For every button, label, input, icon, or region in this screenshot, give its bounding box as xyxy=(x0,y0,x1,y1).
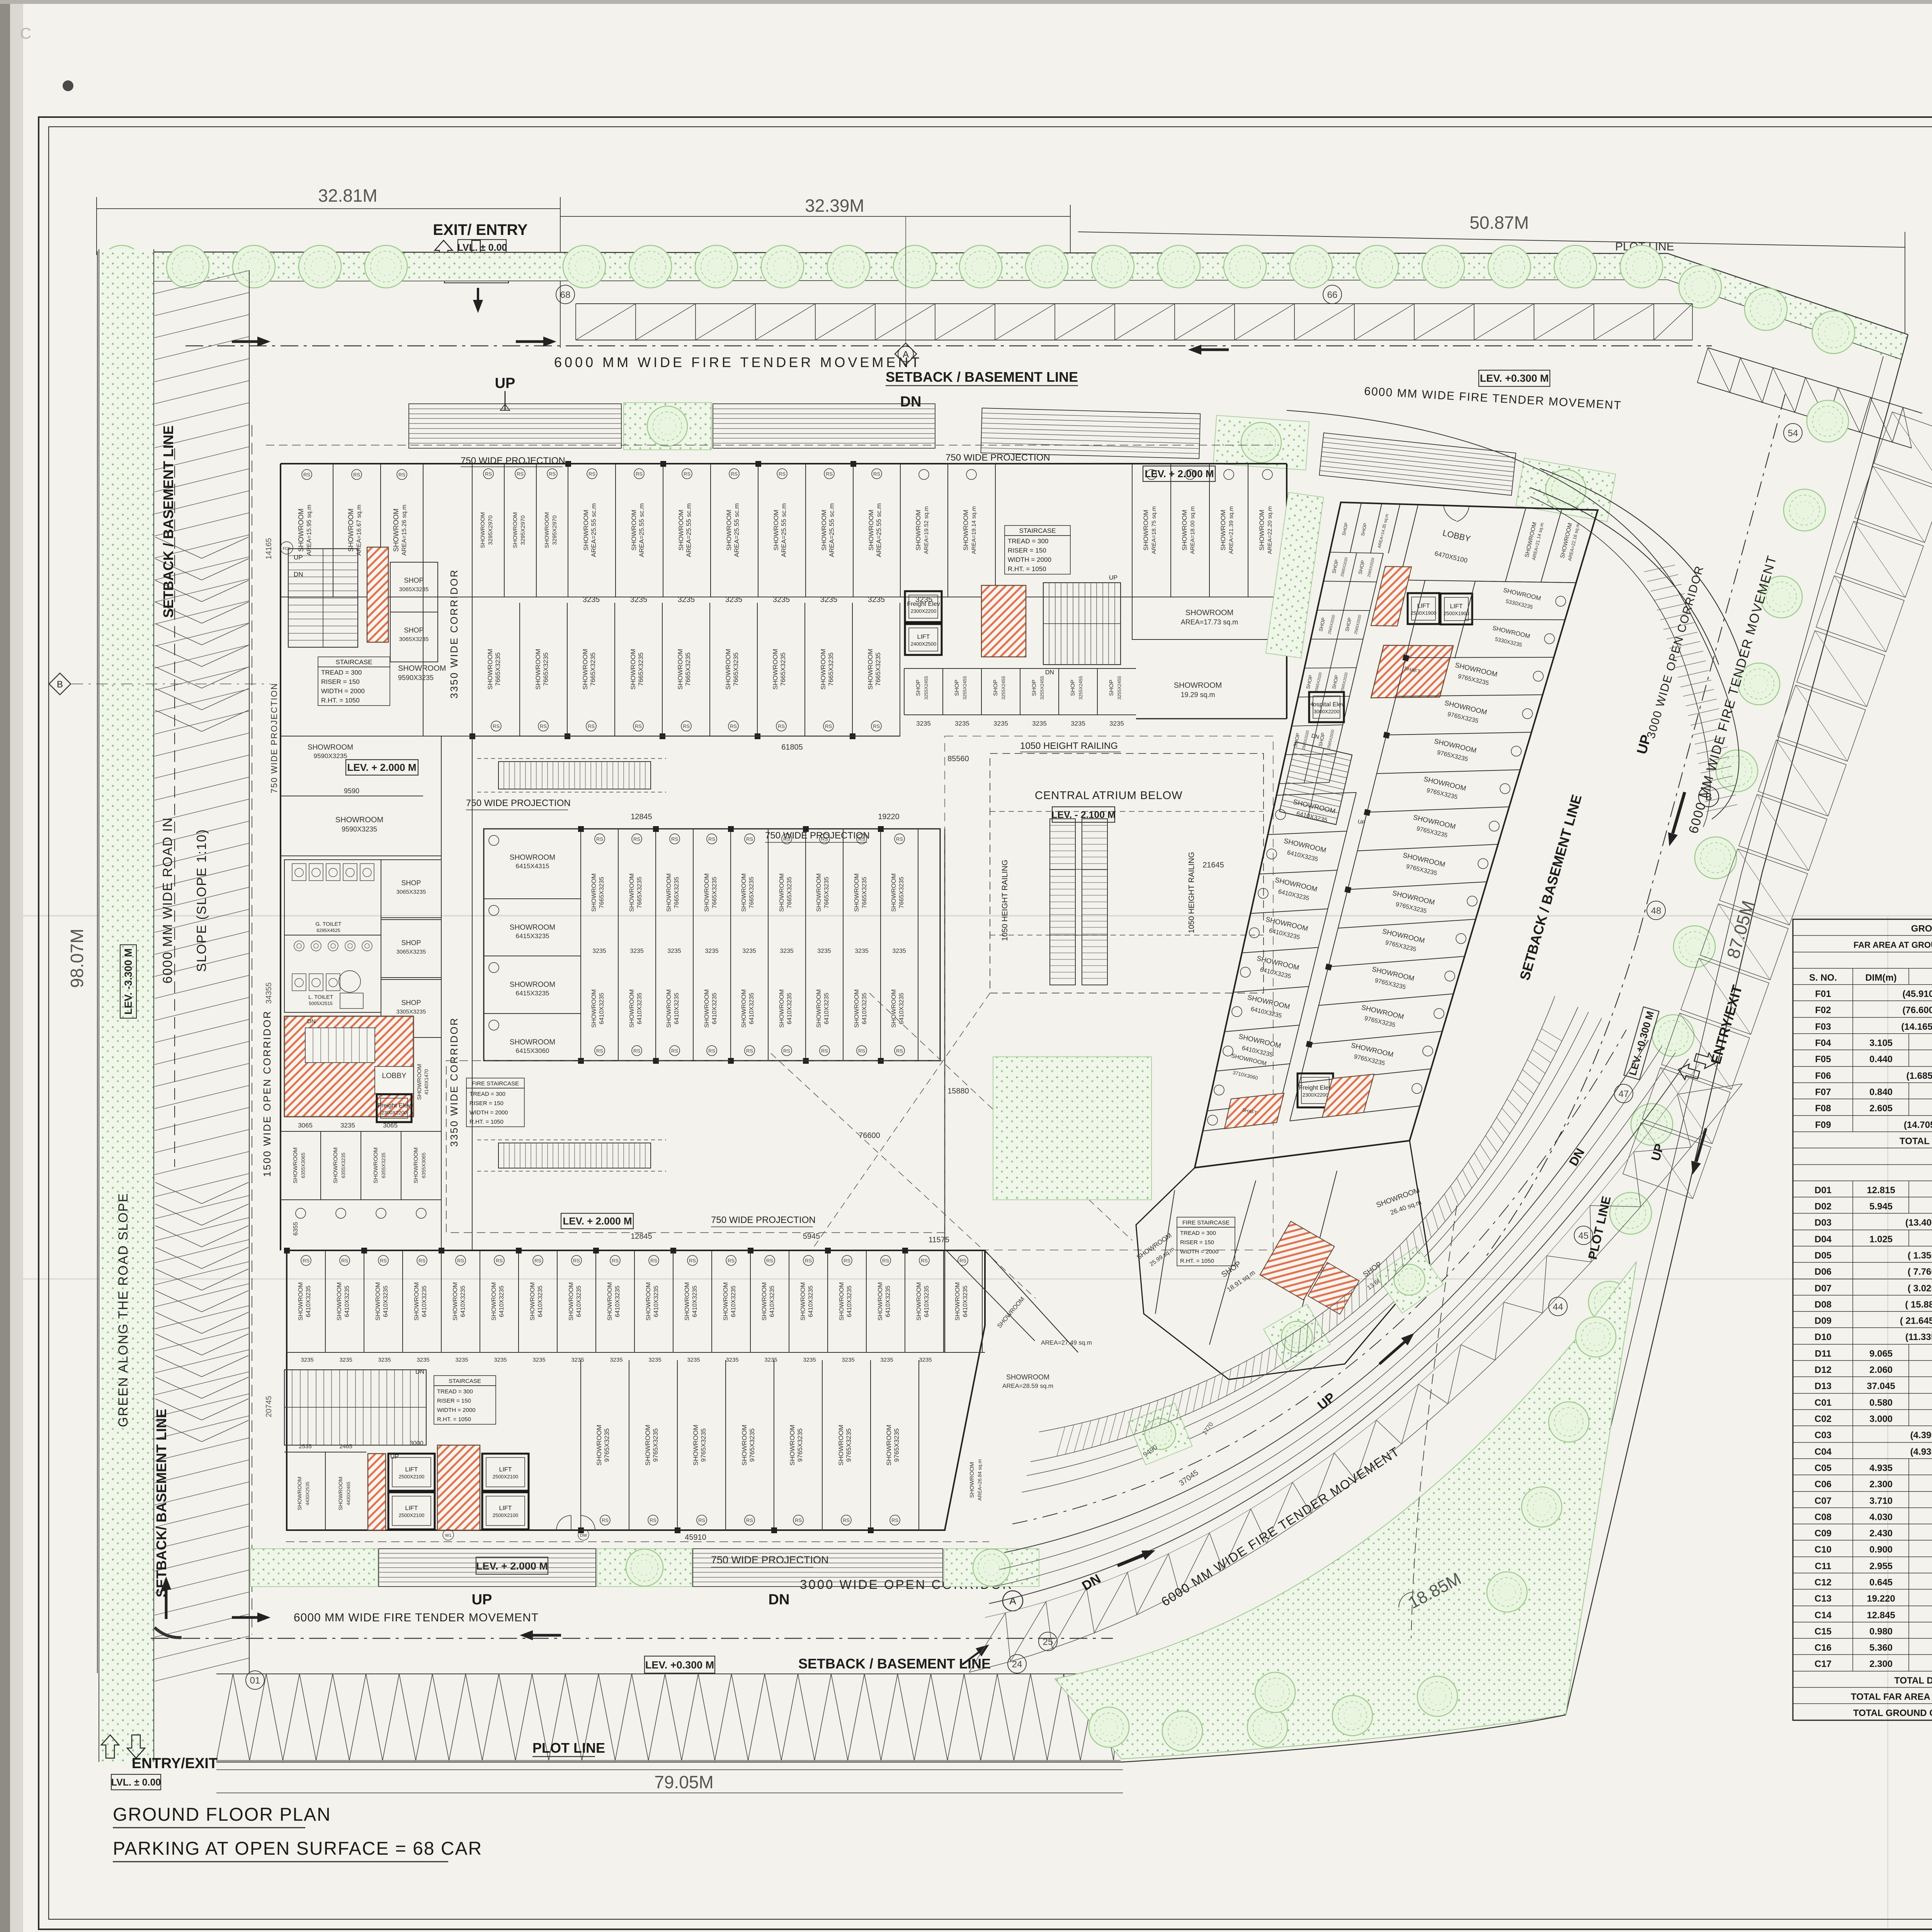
svg-text:SHOWROOM: SHOWROOM xyxy=(491,1282,497,1321)
svg-text:LIFT: LIFT xyxy=(1450,603,1463,610)
svg-text:3235: 3235 xyxy=(817,948,831,954)
svg-text:RS: RS xyxy=(573,1258,580,1264)
svg-text:AREA=25.55 sc.m: AREA=25.55 sc.m xyxy=(780,503,787,557)
svg-text:3235: 3235 xyxy=(610,1357,622,1363)
svg-text:0.580: 0.580 xyxy=(1869,1398,1893,1408)
svg-text:SETBACK / BASEMENT LINE: SETBACK / BASEMENT LINE xyxy=(886,369,1078,385)
svg-text:RS: RS xyxy=(596,1048,603,1054)
svg-text:B: B xyxy=(1705,791,1712,803)
svg-text:C08: C08 xyxy=(1815,1512,1832,1522)
svg-text:3065: 3065 xyxy=(298,1122,313,1129)
svg-text:SHOWROOM: SHOWROOM xyxy=(486,649,494,690)
svg-text:RS: RS xyxy=(959,1258,966,1264)
svg-text:3235: 3235 xyxy=(780,948,794,954)
svg-text:SHOWROOM: SHOWROOM xyxy=(954,1282,961,1321)
svg-text:3235: 3235 xyxy=(1109,720,1124,727)
svg-text:0.980: 0.980 xyxy=(1869,1626,1893,1637)
svg-text:19.220: 19.220 xyxy=(1867,1594,1895,1604)
svg-text:( 7.760 + 6.440 )/2 X 1.155: ( 7.760 + 6.440 )/2 X 1.155 xyxy=(1908,1267,1932,1277)
svg-text:TOTAL ADDITION AREA (A): TOTAL ADDITION AREA (A) xyxy=(1900,1136,1932,1146)
svg-text:SHOWROOM: SHOWROOM xyxy=(741,873,747,912)
svg-text:6410X3235: 6410X3235 xyxy=(861,993,868,1024)
svg-text:9765X3235: 9765X3235 xyxy=(845,1429,852,1462)
svg-text:6410X3235: 6410X3235 xyxy=(673,993,680,1024)
svg-text:SHOWROOM: SHOWROOM xyxy=(398,664,446,673)
svg-text:DIM(m): DIM(m) xyxy=(1865,973,1896,983)
svg-text:C03: C03 xyxy=(1815,1430,1832,1440)
svg-text:SHOP: SHOP xyxy=(1031,680,1037,696)
svg-text:WIDTH = 2000: WIDTH = 2000 xyxy=(321,687,365,695)
svg-text:0.645: 0.645 xyxy=(1869,1577,1893,1588)
svg-text:C16: C16 xyxy=(1815,1643,1832,1653)
svg-text:Freight Elev: Freight Elev xyxy=(907,601,940,607)
svg-text:UP: UP xyxy=(495,375,515,391)
svg-text:SHOWROOM: SHOWROOM xyxy=(684,1282,690,1321)
svg-text:SHOWROOM: SHOWROOM xyxy=(332,1147,339,1183)
svg-text:SHOP: SHOP xyxy=(915,680,922,696)
svg-text:EXIT/ ENTRY: EXIT/ ENTRY xyxy=(433,221,528,238)
svg-text:3235: 3235 xyxy=(880,1357,893,1363)
svg-text:6410X3235: 6410X3235 xyxy=(305,1286,312,1317)
svg-text:3235: 3235 xyxy=(630,948,644,954)
svg-text:STAIRCASE: STAIRCASE xyxy=(1019,527,1056,534)
svg-text:SHOWROOM: SHOWROOM xyxy=(452,1282,459,1321)
svg-text:750 WIDE PROJECTION: 750 WIDE PROJECTION xyxy=(711,1554,829,1566)
svg-text:D02: D02 xyxy=(1815,1201,1832,1212)
svg-text:RS: RS xyxy=(341,1258,348,1264)
svg-text:SHOWROOM: SHOWROOM xyxy=(510,923,555,932)
svg-text:3.000: 3.000 xyxy=(1869,1414,1893,1424)
svg-text:750 WIDE PROJECTION: 750 WIDE PROJECTION xyxy=(461,456,565,466)
svg-text:SHOWROOM: SHOWROOM xyxy=(741,989,747,1028)
svg-text:2500X1900: 2500X1900 xyxy=(1411,610,1437,616)
svg-text:STAIRCASE: STAIRCASE xyxy=(335,658,372,666)
svg-text:85560: 85560 xyxy=(947,755,969,763)
svg-text:C14: C14 xyxy=(1815,1610,1832,1621)
svg-text:D05: D05 xyxy=(1815,1250,1832,1261)
svg-text:SHOWROOM: SHOWROOM xyxy=(510,1038,555,1046)
svg-text:SHOWROOM: SHOWROOM xyxy=(591,873,597,912)
svg-text:3235: 3235 xyxy=(955,720,969,727)
svg-text:20745: 20745 xyxy=(265,1396,273,1417)
svg-text:A: A xyxy=(1009,1595,1016,1607)
svg-text:RS: RS xyxy=(684,471,690,477)
svg-text:C15: C15 xyxy=(1815,1626,1832,1637)
svg-text:SHOWROOM: SHOWROOM xyxy=(854,873,860,912)
svg-text:3235: 3235 xyxy=(919,1357,932,1363)
svg-text:RS: RS xyxy=(728,1258,735,1264)
svg-text:7665X3235: 7665X3235 xyxy=(786,877,793,908)
svg-text:6415X3060: 6415X3060 xyxy=(516,1047,549,1054)
svg-text:SHOWROOM: SHOWROOM xyxy=(629,873,635,912)
svg-text:RISER = 150: RISER = 150 xyxy=(1008,547,1046,554)
svg-text:RS: RS xyxy=(650,1517,656,1523)
svg-text:FIRE STAIRCASE: FIRE STAIRCASE xyxy=(472,1080,519,1087)
svg-text:37.045: 37.045 xyxy=(1867,1381,1895,1391)
svg-text:RS: RS xyxy=(844,1258,850,1264)
svg-text:SHOWROOM: SHOWROOM xyxy=(292,1147,299,1183)
svg-text:6295X4525: 6295X4525 xyxy=(316,928,340,933)
svg-text:6000 MM WIDE FIRE TENDER MOVEM: 6000 MM WIDE FIRE TENDER MOVEMENT xyxy=(294,1611,539,1624)
svg-text:6410X3235: 6410X3235 xyxy=(730,1286,737,1317)
svg-text:SHOWROOM: SHOWROOM xyxy=(867,649,874,690)
svg-text:19220: 19220 xyxy=(878,813,900,821)
svg-text:12.845: 12.845 xyxy=(1867,1610,1895,1621)
svg-text:DN: DN xyxy=(307,1018,316,1025)
svg-text:RS: RS xyxy=(826,471,833,477)
svg-text:SHOWROOM: SHOWROOM xyxy=(595,1425,603,1466)
svg-text:SHOWROOM: SHOWROOM xyxy=(413,1282,420,1321)
svg-text:76600: 76600 xyxy=(859,1131,880,1140)
svg-text:Freight Elev: Freight Elev xyxy=(378,1102,410,1109)
svg-text:6410X3235: 6410X3235 xyxy=(636,993,643,1024)
svg-text:7665X3235: 7665X3235 xyxy=(861,877,868,908)
svg-text:SHOWROOM: SHOWROOM xyxy=(779,873,785,912)
svg-text:SETBACK / BASEMENT LINE: SETBACK / BASEMENT LINE xyxy=(160,425,176,618)
svg-text:3235: 3235 xyxy=(705,948,719,954)
svg-text:F07: F07 xyxy=(1815,1087,1831,1097)
svg-text:6410X3235: 6410X3235 xyxy=(460,1286,466,1317)
svg-text:RS: RS xyxy=(698,1517,705,1523)
svg-text:6410X3235: 6410X3235 xyxy=(599,993,605,1024)
svg-text:1050 HEIGHT RAILING: 1050 HEIGHT RAILING xyxy=(1020,741,1118,751)
svg-text:9765X3235: 9765X3235 xyxy=(603,1429,611,1462)
svg-text:SHOWROOM: SHOWROOM xyxy=(510,981,555,989)
svg-text:11575: 11575 xyxy=(929,1236,949,1244)
svg-text:RS: RS xyxy=(398,472,405,478)
svg-text:1.025: 1.025 xyxy=(1869,1234,1893,1245)
svg-text:LIFT: LIFT xyxy=(405,1505,418,1512)
svg-text:SHOWROOM: SHOWROOM xyxy=(512,512,519,548)
svg-text:TREAD = 300: TREAD = 300 xyxy=(437,1388,473,1395)
svg-text:6410X3235: 6410X3235 xyxy=(383,1286,389,1317)
svg-text:RS: RS xyxy=(683,723,690,729)
svg-text:(13.400 + 3.305)/2 X 11.575: (13.400 + 3.305)/2 X 11.575 xyxy=(1905,1218,1932,1228)
svg-text:2400X2500: 2400X2500 xyxy=(911,641,937,647)
svg-text:F08: F08 xyxy=(1815,1103,1831,1114)
svg-text:C05: C05 xyxy=(1815,1463,1832,1473)
svg-text:48: 48 xyxy=(1651,906,1662,916)
svg-text:AREA=25.55 sc.m: AREA=25.55 sc.m xyxy=(733,503,740,557)
svg-text:SETBACK/ BASEMENT LINE: SETBACK/ BASEMENT LINE xyxy=(153,1409,169,1597)
svg-text:D06: D06 xyxy=(1815,1267,1832,1277)
svg-text:(4.395 + 4.385)/2 X 9.490: (4.395 + 4.385)/2 X 9.490 xyxy=(1910,1430,1932,1440)
svg-text:6415X3235: 6415X3235 xyxy=(516,990,549,997)
svg-text:3235: 3235 xyxy=(687,1357,700,1363)
svg-text:6410X3235: 6410X3235 xyxy=(748,993,755,1024)
svg-text:9765X3235: 9765X3235 xyxy=(893,1429,900,1462)
svg-text:750 WIDE PROJECTION: 750 WIDE PROJECTION xyxy=(466,798,571,808)
svg-text:0.840: 0.840 xyxy=(1869,1087,1893,1097)
svg-text:6000 MM WIDE ROAD IN: 6000 MM WIDE ROAD IN xyxy=(160,817,175,983)
svg-text:CENTRAL ATRIUM BELOW: CENTRAL ATRIUM BELOW xyxy=(1035,789,1183,802)
svg-text:SHOWROOM: SHOWROOM xyxy=(413,1147,419,1183)
svg-text:RS: RS xyxy=(588,723,595,729)
svg-text:RISER = 150: RISER = 150 xyxy=(321,678,360,685)
svg-text:3350 WIDE CORRIDOR: 3350 WIDE CORRIDOR xyxy=(448,569,460,699)
svg-text:AREA=22.20 sq.m: AREA=22.20 sq.m xyxy=(1267,506,1273,554)
svg-text:RS: RS xyxy=(549,471,556,477)
svg-text:UP: UP xyxy=(472,1592,492,1608)
svg-text:3305X3235: 3305X3235 xyxy=(396,1009,426,1015)
svg-text:SHOWROOM: SHOWROOM xyxy=(392,509,400,552)
svg-text:C07: C07 xyxy=(1815,1496,1832,1506)
svg-text:RS: RS xyxy=(746,836,753,842)
svg-text:7665X3235: 7665X3235 xyxy=(732,653,740,686)
svg-text:RS: RS xyxy=(873,723,880,729)
svg-text:C17: C17 xyxy=(1815,1659,1832,1669)
svg-text:3235: 3235 xyxy=(648,1357,661,1363)
svg-text:7665X3235: 7665X3235 xyxy=(779,653,787,686)
svg-text:12845: 12845 xyxy=(631,813,652,821)
svg-text:2535: 2535 xyxy=(299,1443,311,1450)
svg-text:SHOWROOM: SHOWROOM xyxy=(645,1282,652,1321)
svg-text:DN: DN xyxy=(1045,669,1054,676)
svg-text:RS: RS xyxy=(353,472,360,478)
svg-text:3065X3235: 3065X3235 xyxy=(399,586,429,593)
svg-text:6410X3235: 6410X3235 xyxy=(923,1286,930,1317)
svg-text:AREA=19.52 sq.m: AREA=19.52 sq.m xyxy=(923,506,930,554)
svg-text:9590X3235: 9590X3235 xyxy=(398,674,434,682)
svg-text:R.HT. = 1050: R.HT. = 1050 xyxy=(437,1416,471,1423)
svg-text:68: 68 xyxy=(560,290,571,300)
svg-text:4430X2465: 4430X2465 xyxy=(346,1481,351,1505)
svg-text:C01: C01 xyxy=(1815,1398,1832,1408)
svg-text:3065X3235: 3065X3235 xyxy=(396,889,426,895)
svg-text:(11.335 + 21.645)/2 X 8.990: (11.335 + 21.645)/2 X 8.990 xyxy=(1905,1332,1932,1342)
svg-text:RS: RS xyxy=(534,1258,541,1264)
svg-text:7665X3235: 7665X3235 xyxy=(542,653,549,686)
svg-text:SHOWROOM: SHOWROOM xyxy=(885,1425,893,1466)
svg-text:SHOWROOM: SHOWROOM xyxy=(779,989,785,1028)
svg-text:2500X1900: 2500X1900 xyxy=(1444,611,1469,616)
svg-text:3235: 3235 xyxy=(742,948,756,954)
svg-text:RS: RS xyxy=(746,1517,753,1523)
svg-text:3235: 3235 xyxy=(842,1357,854,1363)
svg-text:7665X3235: 7665X3235 xyxy=(673,877,680,908)
svg-text:SHOWROOM: SHOWROOM xyxy=(677,510,685,551)
svg-text:FIRE STAIRCASE: FIRE STAIRCASE xyxy=(1182,1219,1230,1226)
svg-text:3065X3235: 3065X3235 xyxy=(396,949,426,955)
svg-text:W1: W1 xyxy=(445,1533,452,1538)
svg-text:FCD: FCD xyxy=(283,547,291,551)
svg-text:6355: 6355 xyxy=(293,1222,299,1236)
svg-text:SHOWROOM: SHOWROOM xyxy=(335,816,383,824)
svg-text:D10: D10 xyxy=(1815,1332,1832,1342)
svg-text:SHOWROOM: SHOWROOM xyxy=(337,1476,344,1510)
svg-text:SHOWROOM: SHOWROOM xyxy=(510,854,555,862)
svg-text:3235: 3235 xyxy=(1071,720,1085,727)
svg-text:F06: F06 xyxy=(1815,1071,1831,1081)
svg-text:6355X3065: 6355X3065 xyxy=(421,1153,427,1179)
svg-text:6410X3235: 6410X3235 xyxy=(653,1286,660,1317)
svg-text:79.05M: 79.05M xyxy=(654,1772,713,1792)
svg-text:5.945: 5.945 xyxy=(1869,1201,1893,1212)
svg-text:SHOWROOM: SHOWROOM xyxy=(308,743,353,752)
svg-text:LEV. +0.300 M: LEV. +0.300 M xyxy=(1480,372,1549,384)
svg-text:SHOP: SHOP xyxy=(954,680,960,696)
svg-text:RS: RS xyxy=(633,836,640,842)
svg-text:B: B xyxy=(57,679,63,690)
svg-text:9.065: 9.065 xyxy=(1869,1349,1893,1359)
svg-text:( 1.355 + 7.760 )/2 X 7.345: ( 1.355 + 7.760 )/2 X 7.345 xyxy=(1908,1250,1932,1261)
svg-text:TOTAL FAR AREA AT GROUND FLOOR: TOTAL FAR AREA AT GROUND FLOOR (C)= (A-B… xyxy=(1851,1692,1932,1702)
svg-text:44: 44 xyxy=(1553,1302,1563,1312)
svg-text:R.HT. = 1050: R.HT. = 1050 xyxy=(1008,565,1046,573)
svg-text:7665X3235: 7665X3235 xyxy=(748,877,755,908)
svg-text:Hospital Elev: Hospital Elev xyxy=(1308,701,1344,708)
svg-text:RS: RS xyxy=(821,836,828,842)
svg-text:SHOWROOM: SHOWROOM xyxy=(891,873,897,912)
svg-text:2500X2100: 2500X2100 xyxy=(399,1474,425,1480)
svg-text:UP: UP xyxy=(390,1454,399,1460)
svg-text:GROUND FLOOR PLAN: GROUND FLOOR PLAN xyxy=(113,1804,331,1825)
svg-text:SHOWROOM: SHOWROOM xyxy=(969,1462,975,1498)
svg-text:LVL. ± 0.00: LVL. ± 0.00 xyxy=(111,1777,161,1788)
svg-text:6410X3235: 6410X3235 xyxy=(885,1286,891,1317)
svg-text:6415X4315: 6415X4315 xyxy=(516,862,549,870)
svg-text:( 3.025 + 1.595 )/2 X 9.910: ( 3.025 + 1.595 )/2 X 9.910 xyxy=(1908,1283,1932,1294)
svg-text:SHOWROOM: SHOWROOM xyxy=(692,1425,699,1466)
svg-text:750 WIDE PROJECTION: 750 WIDE PROJECTION xyxy=(765,830,870,841)
svg-text:3255X2455: 3255X2455 xyxy=(1039,676,1045,700)
svg-text:2.300: 2.300 xyxy=(1869,1659,1893,1669)
svg-text:RS: RS xyxy=(708,836,715,842)
svg-text:RS: RS xyxy=(873,471,880,477)
svg-text:7665X3235: 7665X3235 xyxy=(827,653,835,686)
svg-text:3255X2455: 3255X2455 xyxy=(962,676,968,700)
svg-text:5945: 5945 xyxy=(803,1232,820,1241)
svg-text:Freight Elev: Freight Elev xyxy=(1299,1085,1332,1091)
svg-text:UP: UP xyxy=(1109,575,1117,581)
svg-text:SHOWROOM: SHOWROOM xyxy=(666,873,672,912)
svg-text:TREAD = 300: TREAD = 300 xyxy=(469,1091,505,1097)
svg-text:3235: 3235 xyxy=(855,948,869,954)
svg-text:RS: RS xyxy=(778,723,785,729)
svg-text:SHOWROOM: SHOWROOM xyxy=(534,649,542,690)
svg-text:3350 WIDE CORRIDOR: 3350 WIDE CORRIDOR xyxy=(448,1017,460,1147)
svg-text:AREA=25.55 sc.m: AREA=25.55 sc.m xyxy=(875,503,883,557)
svg-text:2300X2200: 2300X2200 xyxy=(381,1110,407,1116)
svg-text:RS: RS xyxy=(650,1258,657,1264)
svg-text:3295X2970: 3295X2970 xyxy=(551,515,558,545)
svg-text:D01: D01 xyxy=(1815,1185,1832,1196)
svg-text:SHOP: SHOP xyxy=(401,879,421,887)
svg-text:TREAD = 300: TREAD = 300 xyxy=(1008,537,1048,545)
svg-text:( 15.880 + 6.700 )/2 X 4.520: ( 15.880 + 6.700 )/2 X 4.520 xyxy=(1905,1299,1932,1310)
svg-text:RS: RS xyxy=(896,1048,903,1054)
svg-text:3295X2970: 3295X2970 xyxy=(520,515,526,545)
svg-text:AREA=25.55 sc.m: AREA=25.55 sc.m xyxy=(828,503,835,557)
svg-text:SHOWROOM: SHOWROOM xyxy=(480,512,486,548)
svg-text:RS: RS xyxy=(588,471,595,477)
svg-text:RS: RS xyxy=(612,1258,619,1264)
svg-text:TREAD = 300: TREAD = 300 xyxy=(1180,1230,1216,1236)
svg-text:RS: RS xyxy=(517,471,524,477)
svg-text:C: C xyxy=(20,25,31,42)
svg-text:12.815: 12.815 xyxy=(1867,1185,1895,1196)
svg-text:F02: F02 xyxy=(1815,1005,1831,1015)
svg-text:6410X3235: 6410X3235 xyxy=(344,1286,350,1317)
svg-text:19.29 sq.m: 19.29 sq.m xyxy=(1180,691,1215,699)
svg-text:RS: RS xyxy=(843,1517,850,1523)
svg-text:C11: C11 xyxy=(1815,1561,1832,1571)
svg-text:DN: DN xyxy=(294,571,303,578)
svg-text:750 WIDE PROJECTION: 750 WIDE PROJECTION xyxy=(269,683,279,793)
svg-text:RS: RS xyxy=(858,1048,865,1054)
svg-text:SHOWROOM: SHOWROOM xyxy=(372,1147,379,1183)
svg-text:61805: 61805 xyxy=(781,743,803,752)
svg-text:9590X3235: 9590X3235 xyxy=(342,825,377,833)
svg-text:6410X3235: 6410X3235 xyxy=(846,1286,853,1317)
svg-text:A: A xyxy=(903,349,909,360)
svg-text:AREA=26.84 sq.m: AREA=26.84 sq.m xyxy=(977,1459,983,1500)
svg-text:6410X3235: 6410X3235 xyxy=(614,1286,621,1317)
svg-text:(1.685 + 1.125 )/2 X 16.030: (1.685 + 1.125 )/2 X 16.030 xyxy=(1906,1071,1932,1081)
svg-text:3235: 3235 xyxy=(993,720,1008,727)
svg-text:SHOP: SHOP xyxy=(992,680,999,696)
svg-text:3255X2455: 3255X2455 xyxy=(1117,676,1122,700)
svg-text:3295X2970: 3295X2970 xyxy=(487,515,494,545)
svg-text:DW: DW xyxy=(580,1533,587,1538)
svg-text:6355X3235: 6355X3235 xyxy=(381,1153,386,1179)
svg-text:DN: DN xyxy=(900,394,922,410)
svg-text:6410X3235: 6410X3235 xyxy=(576,1286,582,1317)
svg-text:50.87M: 50.87M xyxy=(1469,213,1529,233)
svg-text:C12: C12 xyxy=(1815,1577,1832,1588)
svg-text:D03: D03 xyxy=(1815,1218,1832,1228)
svg-text:SHOWROOM: SHOWROOM xyxy=(544,512,550,548)
svg-text:(14.165 + 12.010 )/2 X 61.805: (14.165 + 12.010 )/2 X 61.805 xyxy=(1901,1022,1932,1032)
svg-text:SHOWROOM: SHOWROOM xyxy=(296,1476,303,1510)
svg-text:SHOWROOM: SHOWROOM xyxy=(816,989,822,1028)
svg-text:RS: RS xyxy=(418,1258,425,1264)
svg-text:RS: RS xyxy=(821,1048,828,1054)
svg-text:RS: RS xyxy=(303,1258,310,1264)
svg-text:SHOWROOM: SHOWROOM xyxy=(1142,510,1150,551)
svg-text:AREA=17.73 sq.m: AREA=17.73 sq.m xyxy=(1181,618,1238,626)
svg-text:SHOWROOM: SHOWROOM xyxy=(582,649,589,690)
svg-text:RS: RS xyxy=(858,836,865,842)
svg-text:45910: 45910 xyxy=(685,1533,706,1542)
svg-text:TOTAL GROUND COVERAGE ( C)+ (: TOTAL GROUND COVERAGE ( C)+ (C01 TO C17) xyxy=(1853,1708,1932,1718)
svg-text:3235: 3235 xyxy=(892,948,906,954)
svg-text:LEV. + 2.000 M: LEV. + 2.000 M xyxy=(563,1215,632,1227)
svg-text:7665X3235: 7665X3235 xyxy=(599,877,605,908)
svg-text:9590: 9590 xyxy=(344,787,359,795)
svg-text:01: 01 xyxy=(250,1675,260,1686)
svg-text:LIFT: LIFT xyxy=(499,1505,512,1512)
svg-text:7665X3235: 7665X3235 xyxy=(684,653,692,686)
svg-text:1050 HEIGHT RAILING: 1050 HEIGHT RAILING xyxy=(1187,852,1196,934)
svg-text:3.105: 3.105 xyxy=(1869,1038,1893,1048)
svg-text:(14.705 + 17.310 )/2 X 9.990: (14.705 + 17.310 )/2 X 9.990 xyxy=(1904,1120,1932,1130)
svg-text:2500X2100: 2500X2100 xyxy=(399,1512,425,1518)
svg-text:LIFT: LIFT xyxy=(499,1466,512,1473)
svg-text:6410X3235: 6410X3235 xyxy=(692,1286,698,1317)
svg-text:C09: C09 xyxy=(1815,1528,1832,1539)
svg-text:RS: RS xyxy=(602,1517,609,1523)
svg-text:9765X3235: 9765X3235 xyxy=(700,1429,707,1462)
svg-text:3235: 3235 xyxy=(916,720,931,727)
svg-text:6355X3065: 6355X3065 xyxy=(300,1153,306,1179)
svg-text:54: 54 xyxy=(1788,428,1798,439)
svg-text:RS: RS xyxy=(671,1048,678,1054)
svg-text:GREEN ALONG THE ROAD SLOPE: GREEN ALONG THE ROAD SLOPE xyxy=(116,1193,131,1427)
svg-text:9765X3235: 9765X3235 xyxy=(796,1429,804,1462)
svg-text:6410X3235: 6410X3235 xyxy=(498,1286,505,1317)
svg-text:RS: RS xyxy=(485,471,492,477)
